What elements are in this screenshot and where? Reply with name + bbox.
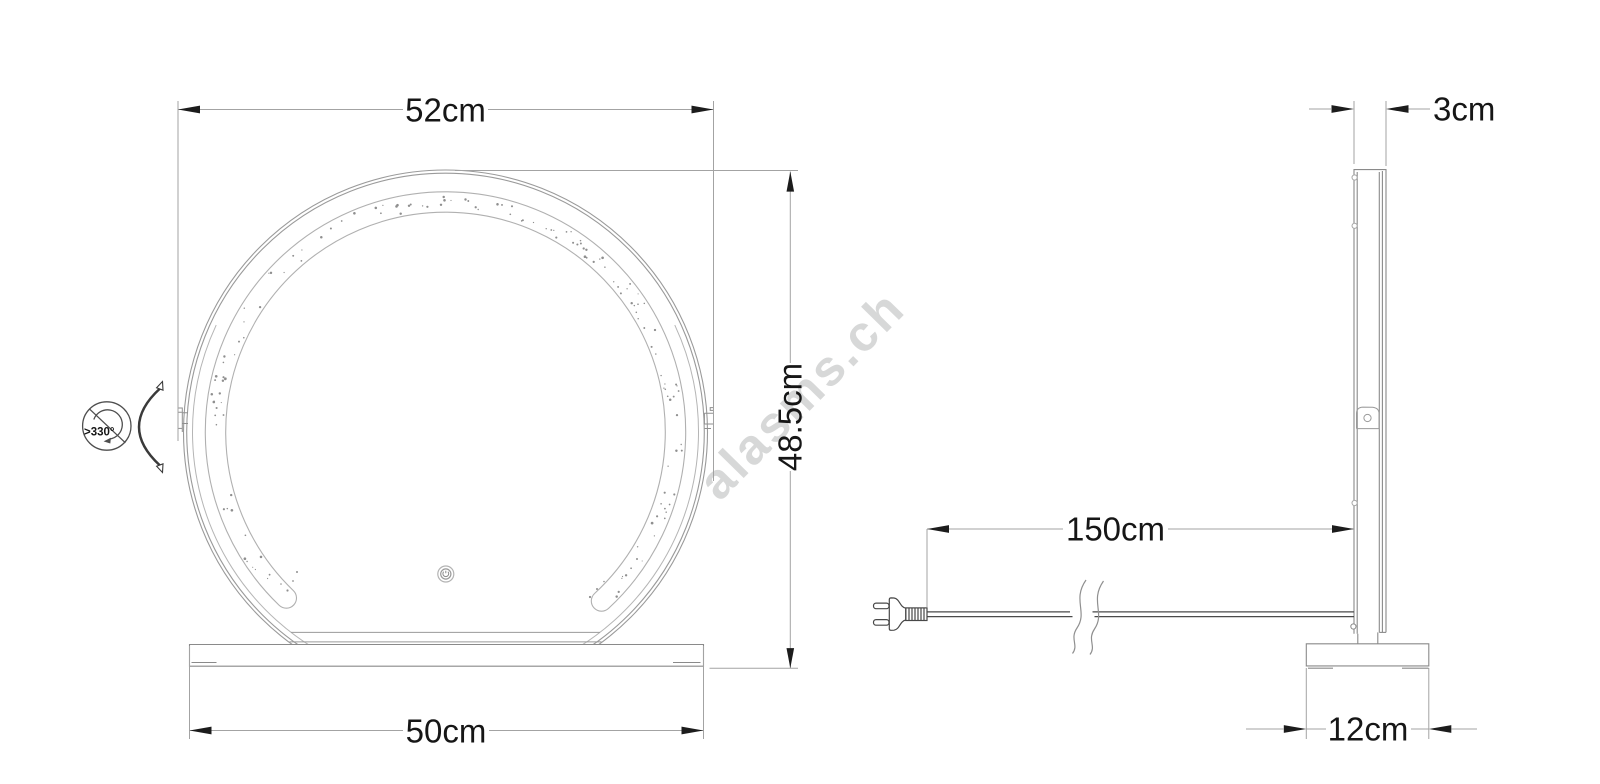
svg-text:12cm: 12cm: [1328, 711, 1409, 748]
svg-text:52cm: 52cm: [405, 92, 486, 129]
svg-text:>330°: >330°: [84, 427, 115, 439]
svg-text:3cm: 3cm: [1433, 91, 1495, 128]
svg-text:48.5cm: 48.5cm: [772, 363, 809, 471]
svg-text:50cm: 50cm: [406, 713, 487, 750]
svg-text:150cm: 150cm: [1066, 511, 1165, 548]
